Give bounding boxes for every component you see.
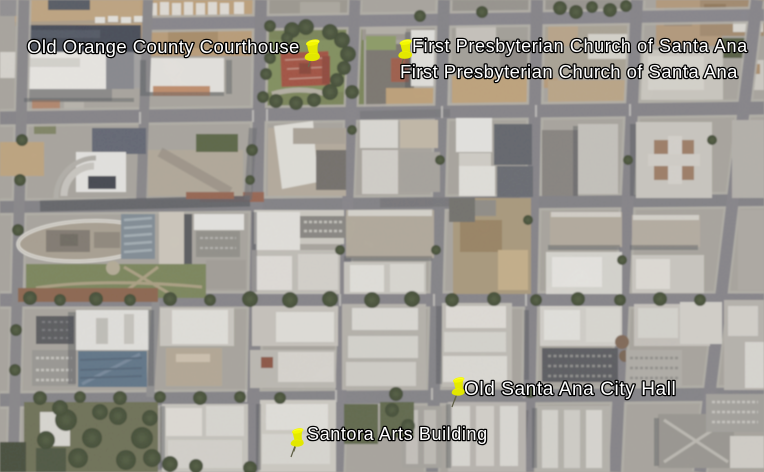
svg-text:First Presbyterian Church of S: First Presbyterian Church of Santa Ana [400, 61, 738, 82]
svg-text:Santora Arts Building: Santora Arts Building [307, 424, 488, 444]
svg-text:Old Santa Ana City Hall: Old Santa Ana City Hall [464, 379, 676, 400]
svg-text:First Presbyterian Church of S: First Presbyterian Church of Santa Ana [412, 36, 748, 56]
svg-text:Old Orange County Courthouse: Old Orange County Courthouse [27, 36, 300, 57]
